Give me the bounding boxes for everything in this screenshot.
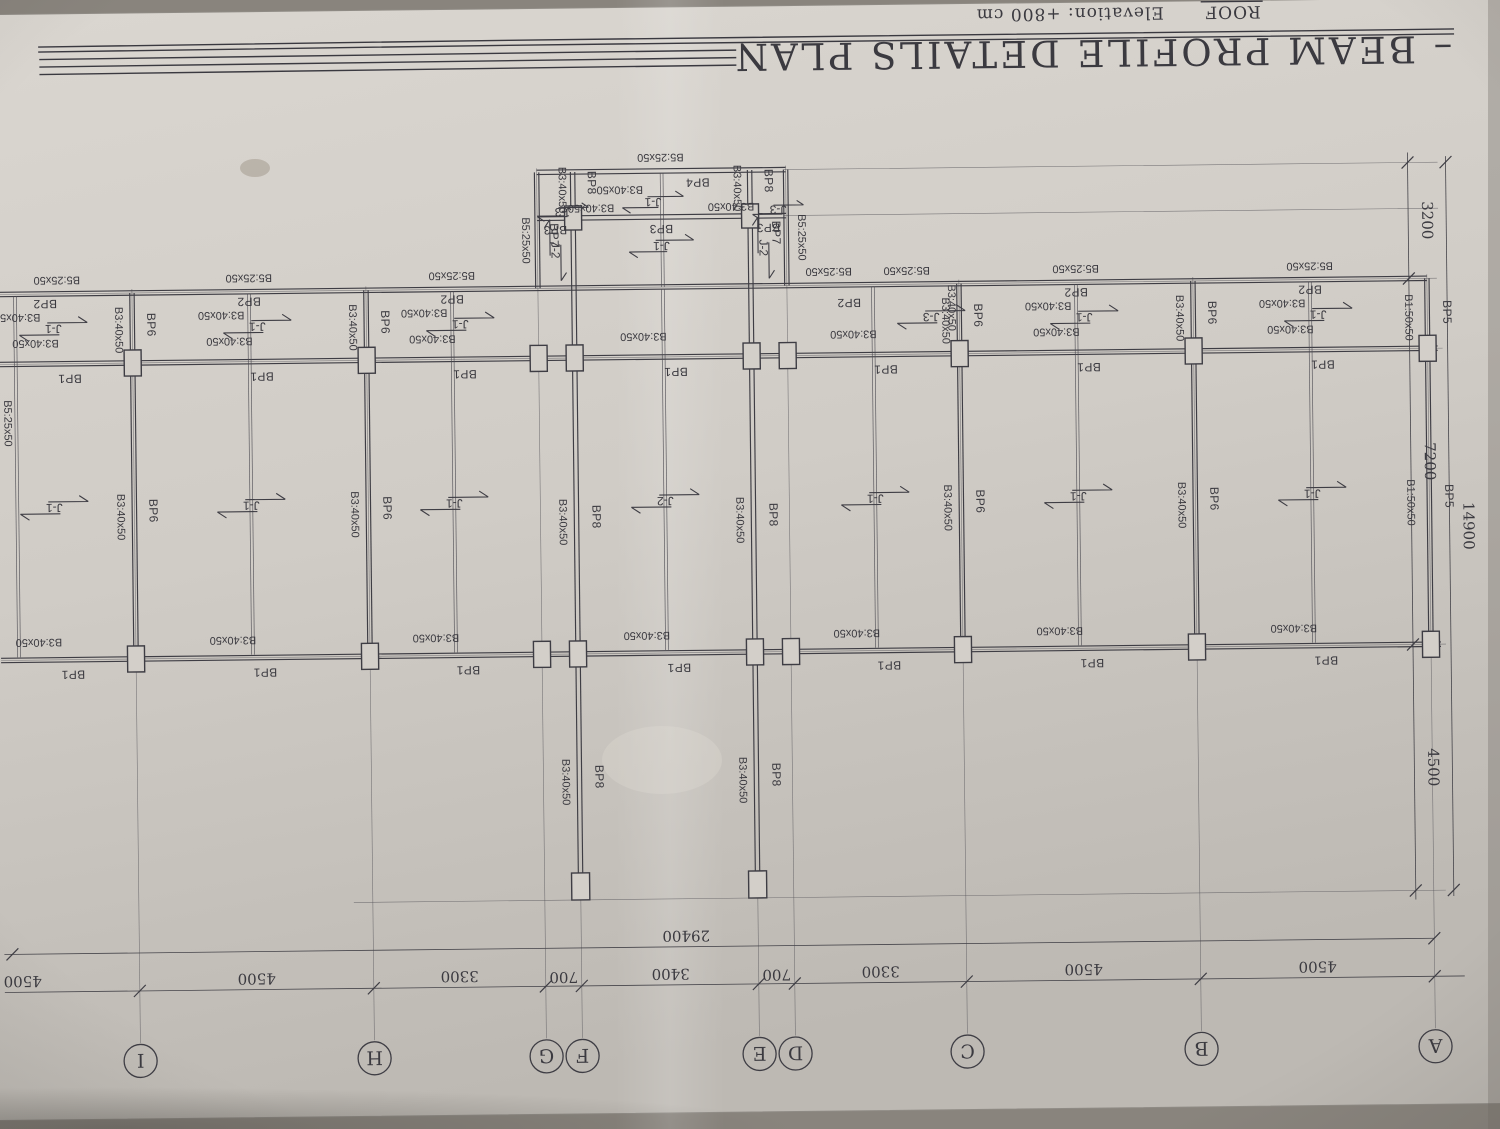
photo-vignette	[0, 0, 1500, 1129]
beam-plan-photo: ABCDEFGHI4500450033007003400700330045004…	[0, 0, 1500, 1129]
photographed-drawing-sheet: ABCDEFGHI4500450033007003400700330045004…	[0, 0, 1500, 1129]
bottom-shadow	[0, 1040, 1500, 1129]
paper-edge-shadow	[1488, 0, 1500, 1129]
